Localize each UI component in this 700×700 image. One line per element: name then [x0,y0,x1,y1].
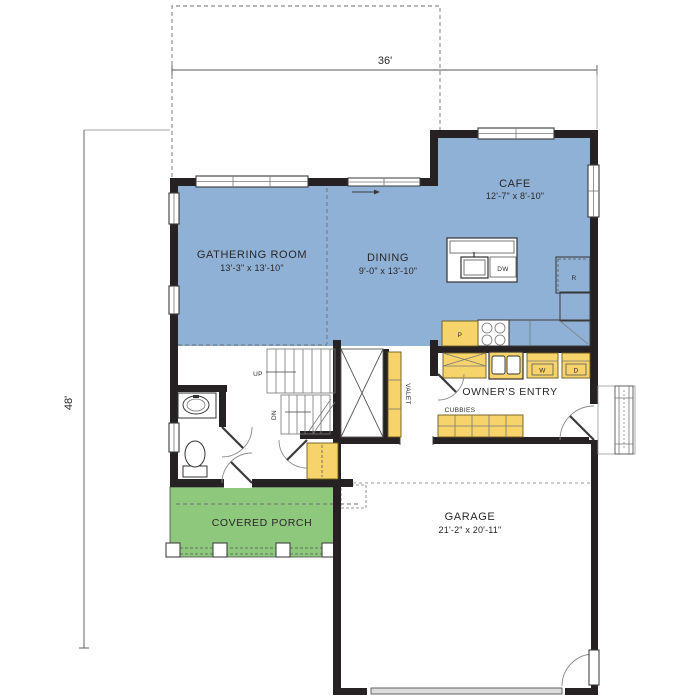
porch-post [213,543,227,557]
toilet-bowl [185,441,205,467]
covered-porch-label: COVERED PORCH [212,517,313,529]
wall-kitchen-hall [430,340,438,376]
laundry-sink [489,352,523,379]
porch-post [276,543,290,557]
dimension-depth: 48' [63,130,170,648]
coat-closet [307,443,338,479]
garage-label: GARAGE [445,511,496,523]
washer-label: W [539,368,546,375]
entry-door-opening [589,404,599,440]
powder-door [222,427,252,457]
dryer-label: D [574,368,579,375]
toilet-tank [183,466,207,477]
cubbies-unit [438,415,523,437]
living-area-floor [178,138,590,346]
cafe-window [478,128,554,139]
wall-stair-east [333,340,341,441]
dim-width-label: 36' [378,55,392,67]
garage-overhead-door [371,688,562,694]
kitchen-island: DW [447,238,517,282]
bathroom-fixtures [178,393,216,477]
left-window-lower [169,286,179,314]
bench-cabinet [443,353,486,378]
garage-size: 21'-2" x 20'-11" [439,525,502,535]
valet-label: VALET [404,383,411,405]
stair-down-label: DN [271,410,278,420]
toilet [183,441,207,477]
refrigerator: R [556,257,590,293]
wall-bottom-house [170,479,353,487]
stairs: UP DN [253,349,383,437]
garage-service-door [562,650,599,686]
cafe-label: CAFE [499,178,531,190]
powder-window [169,423,179,452]
dishwasher-label: DW [497,266,509,273]
stair-break-line [313,402,335,434]
cafe-side-window [588,165,599,217]
dryer: D [562,353,590,378]
garage-corner-dashed [341,485,366,508]
cooktop [478,320,509,346]
stair-landing-closet [341,349,383,437]
cafe-size: 12'-7" x 8'-10" [486,191,544,201]
gathering-room-label: GATHERING ROOM [197,249,307,261]
stair-down-flight [281,395,330,434]
gathering-room-size: 13'-3" x 13'-10" [220,263,284,273]
closet-door [279,440,307,468]
gathering-window [196,176,308,187]
garage-passage-opening [400,436,433,445]
cubbies-label: CUBBIES [445,407,476,414]
floor-plan-drawing: 36' 48' [0,0,700,700]
refrigerator-label: R [572,275,577,282]
porch-post [166,543,180,557]
dining-size: 9'-0" x 13'-10" [359,266,417,276]
washer: W [527,353,558,378]
wall-powder-right [219,385,226,427]
wall-powder-top [170,385,227,392]
powder-vanity [178,393,216,418]
roof-outline-dashed [172,6,440,177]
owners-entry-label: OWNER'S ENTRY [462,386,557,398]
left-window-upper [169,193,179,224]
wall-garage-top [333,437,598,444]
stair-up-flight [267,349,335,393]
entry-stoop [598,386,635,454]
valet-unit [388,352,401,437]
stair-break-line [309,399,331,431]
dim-depth-label: 48' [63,396,75,410]
pantry: P [442,321,478,346]
dining-label: DINING [367,252,409,264]
floor-plan-page: 36' 48' [0,0,700,700]
pantry-label: P [458,332,463,339]
service-door-leaf [589,650,599,685]
dimension-width: 36' [172,55,597,129]
garage-features [341,483,591,508]
wall-cafe-left [430,130,438,186]
exterior-entry-door [560,406,594,440]
vanity-faucet [193,395,199,398]
stair-up-label: UP [253,371,263,378]
